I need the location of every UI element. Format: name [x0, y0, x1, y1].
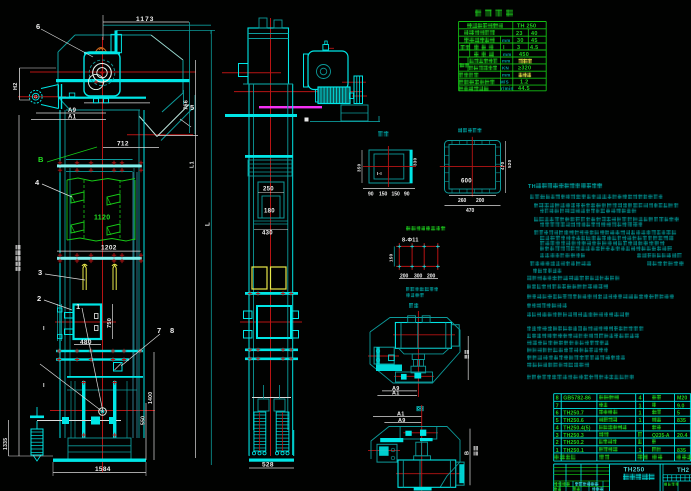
svg-text:350: 350	[357, 163, 362, 172]
svg-text:200: 200	[427, 274, 436, 280]
svg-text:300: 300	[414, 274, 423, 280]
svg-text:2: 2	[37, 294, 41, 303]
svg-text:1173: 1173	[136, 16, 155, 23]
svg-text:TH 250: TH 250	[517, 24, 536, 30]
svg-text:mm: mm	[502, 59, 511, 64]
svg-text:200: 200	[476, 198, 485, 204]
svg-text:mm: mm	[502, 73, 511, 78]
svg-text:2: 2	[556, 440, 559, 446]
svg-text:1202: 1202	[101, 245, 117, 252]
svg-text:1.2: 1.2	[520, 80, 529, 86]
svg-text:mm: mm	[502, 38, 511, 43]
svg-text:45: 45	[531, 38, 538, 44]
svg-text:600: 600	[461, 179, 472, 185]
svg-text:1: 1	[639, 418, 642, 424]
svg-text:TH250.2: TH250.2	[563, 440, 584, 446]
svg-text:TH: TH	[528, 184, 536, 190]
svg-text:4: 4	[35, 178, 40, 187]
svg-text:TH250.6: TH250.6	[563, 418, 584, 424]
svg-text:3: 3	[556, 433, 559, 439]
svg-text:l: l	[503, 45, 505, 51]
svg-text:4.5: 4.5	[530, 45, 539, 51]
svg-text:5: 5	[677, 410, 680, 416]
svg-text:Q235-A: Q235-A	[652, 433, 670, 439]
svg-text:≥320: ≥320	[518, 66, 531, 72]
svg-text:r/min: r/min	[501, 86, 514, 91]
svg-text:mm: mm	[503, 52, 512, 57]
svg-text:520: 520	[507, 159, 512, 168]
svg-text:250: 250	[263, 187, 274, 193]
svg-text:3: 3	[517, 45, 520, 51]
svg-text:5: 5	[190, 103, 194, 112]
svg-text:TH250.7: TH250.7	[563, 410, 584, 416]
svg-text:H2: H2	[13, 82, 19, 90]
svg-text:6: 6	[36, 22, 40, 31]
svg-text:150: 150	[389, 253, 394, 262]
svg-text:180: 180	[264, 209, 275, 215]
svg-text:5: 5	[556, 418, 559, 424]
svg-text:150: 150	[379, 192, 388, 198]
svg-text:1: 1	[76, 302, 80, 311]
svg-text:TH250.1: TH250.1	[563, 448, 584, 454]
svg-text:7: 7	[556, 403, 559, 409]
svg-text:B: B	[465, 451, 471, 455]
svg-text:B: B	[38, 155, 44, 164]
svg-text:750: 750	[107, 318, 113, 328]
svg-text:835: 835	[677, 418, 686, 424]
svg-text:30: 30	[517, 38, 524, 44]
svg-text:8: 8	[170, 326, 174, 335]
svg-text:L1: L1	[190, 161, 196, 168]
svg-text:23: 23	[516, 31, 523, 37]
svg-text:A1: A1	[392, 391, 400, 397]
svg-text:1120: 1120	[94, 215, 110, 222]
svg-text:8-Φ11: 8-Φ11	[402, 238, 419, 244]
svg-text:1: 1	[639, 448, 642, 454]
svg-text:1: 1	[556, 448, 559, 454]
svg-text:470: 470	[466, 208, 475, 214]
svg-text:A9: A9	[68, 108, 77, 114]
svg-text:1335: 1335	[3, 438, 9, 450]
svg-text:528: 528	[262, 462, 274, 469]
svg-text:GB5782-86: GB5782-86	[563, 396, 591, 402]
svg-text:M20: M20	[677, 396, 687, 402]
svg-text:I-I: I-I	[377, 171, 382, 176]
svg-text:430: 430	[262, 231, 273, 237]
svg-text:3: 3	[38, 268, 42, 277]
svg-text:1: 1	[639, 403, 642, 409]
svg-text:1400: 1400	[148, 392, 154, 404]
svg-text:A9: A9	[398, 418, 406, 424]
svg-text:I: I	[43, 326, 45, 332]
svg-text:450: 450	[519, 52, 529, 58]
svg-text:260: 260	[458, 198, 467, 204]
svg-text:8: 8	[556, 396, 559, 402]
svg-text:1584: 1584	[95, 466, 111, 473]
svg-text:TH250: TH250	[623, 467, 644, 474]
svg-text:835: 835	[677, 448, 686, 454]
svg-text:200: 200	[400, 274, 409, 280]
svg-text:TH2: TH2	[677, 468, 690, 474]
svg-text:480: 480	[80, 339, 92, 346]
svg-text:470: 470	[500, 161, 505, 170]
svg-text:6: 6	[556, 410, 559, 416]
svg-text:7: 7	[157, 326, 161, 335]
svg-text:1: 1	[639, 410, 642, 416]
svg-text:L: L	[206, 222, 212, 226]
svg-text:KN: KN	[502, 65, 509, 70]
svg-text:550: 550	[141, 416, 147, 425]
svg-text:40: 40	[531, 31, 538, 37]
svg-text:M/S: M/S	[500, 79, 509, 84]
svg-text:712: 712	[117, 141, 129, 148]
svg-text:A1: A1	[68, 115, 77, 121]
svg-text:9.0: 9.0	[677, 403, 685, 409]
svg-text:TH250.4(5): TH250.4(5)	[563, 426, 590, 432]
svg-text:20.4: 20.4	[677, 433, 688, 439]
svg-text:150: 150	[392, 192, 401, 198]
svg-text:766: 766	[184, 100, 190, 110]
svg-text:90: 90	[404, 192, 410, 198]
svg-text:I: I	[43, 383, 45, 389]
svg-text:44.5: 44.5	[518, 86, 530, 92]
svg-text:90: 90	[368, 192, 374, 198]
svg-text:TH250.3: TH250.3	[563, 433, 584, 439]
svg-text:330: 330	[413, 157, 418, 166]
